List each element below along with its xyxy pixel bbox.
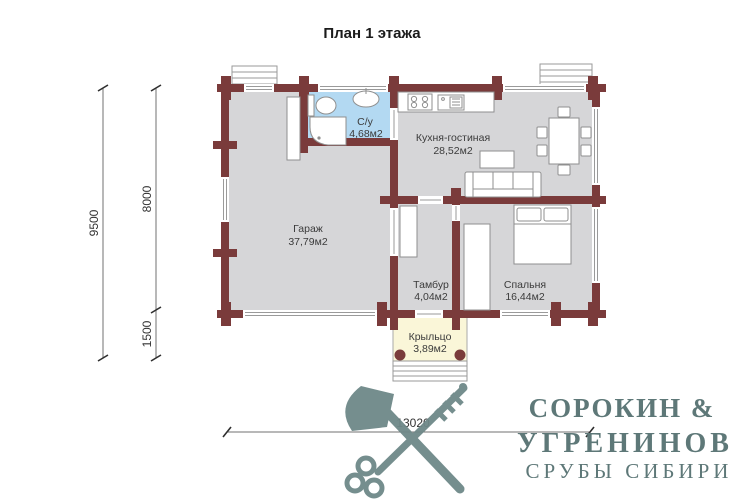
svg-text:3,89м2: 3,89м2: [413, 343, 447, 355]
svg-text:Спальня: Спальня: [504, 279, 546, 291]
toilet-icon: [308, 95, 336, 116]
svg-text:16,44м2: 16,44м2: [505, 291, 544, 303]
garage-gate: [243, 310, 377, 318]
porch-steps: [393, 361, 467, 381]
axe-and-key-icon: [345, 383, 467, 496]
coffee-table-icon: [480, 151, 514, 168]
svg-text:Гараж: Гараж: [293, 223, 323, 235]
dimension-total-height: 9500: [87, 85, 108, 361]
room-label-garage: Гараж 37,79м2: [288, 223, 327, 248]
double-bed-icon: [514, 205, 571, 264]
floor-plan-page: План 1 этажа: [0, 0, 753, 502]
svg-text:Крыльцо: Крыльцо: [409, 331, 452, 343]
dimension-main-and-porch-height: 8000 1500: [140, 85, 161, 361]
shower-icon: [310, 117, 346, 145]
sofa-icon: [465, 172, 541, 197]
floor-plan-drawing: План 1 этажа: [0, 0, 753, 502]
page-title: План 1 этажа: [323, 25, 421, 42]
svg-text:28,52м2: 28,52м2: [433, 145, 472, 157]
svg-text:9500: 9500: [87, 209, 101, 236]
logo-line2: УГРЕНИНОВ: [517, 428, 733, 459]
svg-text:Кухня-гостиная: Кухня-гостиная: [416, 132, 490, 144]
kitchen-sink-icon: [438, 95, 464, 110]
svg-text:1500: 1500: [140, 320, 154, 347]
svg-text:8000: 8000: [140, 185, 154, 212]
svg-text:37,79м2: 37,79м2: [288, 236, 327, 248]
wardrobe-icon: [464, 224, 490, 310]
logo-line3: СРУБЫ СИБИРИ: [526, 459, 733, 483]
svg-text:Тамбур: Тамбур: [413, 279, 449, 291]
svg-text:4,04м2: 4,04м2: [414, 291, 448, 303]
tambour-closet: [400, 206, 417, 257]
room-label-porch: Крыльцо 3,89м2: [409, 331, 452, 355]
company-logo: СОРОКИН & УГРЕНИНОВ СРУБЫ СИБИРИ: [517, 393, 733, 483]
logo-line1: СОРОКИН &: [529, 393, 716, 423]
svg-text:4,68м2: 4,68м2: [349, 128, 383, 140]
porch-column-icon: [395, 350, 406, 361]
svg-text:С/у: С/у: [357, 116, 374, 128]
porch-column-icon: [455, 350, 466, 361]
stove-icon: [408, 94, 432, 110]
garage-shelf: [287, 97, 300, 160]
room-label-bedroom: Спальня 16,44м2: [504, 279, 546, 303]
room-label-tambour: Тамбур 4,04м2: [413, 279, 449, 303]
